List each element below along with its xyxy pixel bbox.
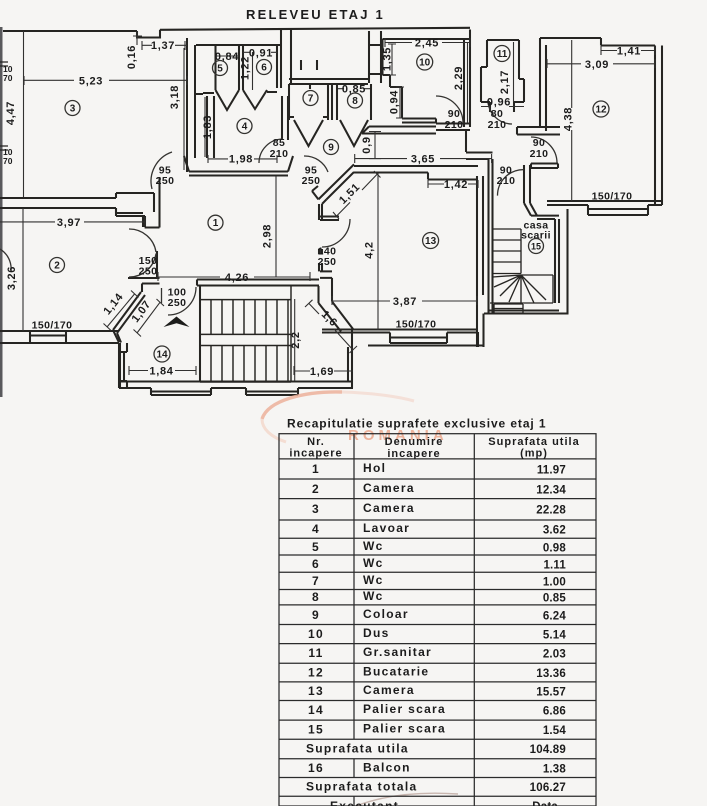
- svg-text:210: 210: [270, 148, 289, 160]
- svg-text:3,26: 3,26: [6, 266, 18, 290]
- svg-text:11: 11: [497, 49, 508, 60]
- svg-text:9: 9: [328, 143, 334, 154]
- svg-text:22.28: 22.28: [536, 505, 566, 517]
- svg-text:3,09: 3,09: [585, 59, 609, 71]
- svg-text:2,17: 2,17: [499, 70, 511, 94]
- svg-text:8: 8: [352, 96, 358, 107]
- svg-text:13.36: 13.36: [536, 668, 566, 680]
- svg-text:12.34: 12.34: [536, 485, 566, 497]
- svg-text:Suprafata utila: Suprafata utila: [488, 436, 579, 448]
- svg-text:1,69: 1,69: [310, 366, 334, 378]
- svg-text:Coloar: Coloar: [363, 607, 409, 621]
- svg-text:4,38: 4,38: [563, 107, 575, 131]
- svg-text:3.62: 3.62: [543, 525, 566, 537]
- svg-text:incapere: incapere: [289, 448, 342, 460]
- svg-text:Lavoar: Lavoar: [363, 521, 410, 535]
- svg-text:104.89: 104.89: [530, 744, 566, 756]
- svg-text:2,2: 2,2: [290, 331, 302, 348]
- svg-text:1,35: 1,35: [382, 47, 394, 71]
- svg-text:9: 9: [312, 608, 320, 622]
- svg-text:Bucatarie: Bucatarie: [363, 665, 429, 679]
- svg-text:5.14: 5.14: [543, 630, 567, 642]
- svg-text:10: 10: [419, 58, 431, 69]
- svg-text:7: 7: [312, 574, 320, 588]
- svg-text:3: 3: [70, 104, 76, 115]
- svg-text:1.54: 1.54: [543, 725, 567, 737]
- svg-text:13: 13: [308, 684, 324, 698]
- svg-text:RELEVEU ETAJ 1: RELEVEU ETAJ 1: [246, 7, 385, 22]
- svg-text:14: 14: [156, 350, 168, 361]
- svg-text:250: 250: [168, 297, 187, 309]
- svg-text:Wc: Wc: [363, 556, 384, 570]
- svg-text:250: 250: [139, 266, 158, 278]
- svg-text:150/170: 150/170: [396, 319, 437, 331]
- svg-text:2,98: 2,98: [262, 224, 274, 248]
- svg-text:150/170: 150/170: [32, 320, 73, 332]
- svg-text:3,87: 3,87: [393, 296, 417, 308]
- svg-text:1,83: 1,83: [202, 115, 214, 139]
- svg-text:0,94: 0,94: [389, 90, 401, 114]
- svg-text:1,37: 1,37: [151, 40, 175, 52]
- svg-text:6: 6: [261, 63, 267, 74]
- svg-text:6: 6: [312, 557, 320, 571]
- svg-text:1: 1: [213, 218, 219, 229]
- svg-text:5: 5: [217, 64, 223, 75]
- svg-text:1.38: 1.38: [543, 764, 567, 776]
- svg-text:0,9: 0,9: [361, 136, 373, 153]
- svg-text:Camera: Camera: [363, 501, 415, 515]
- svg-text:1.11: 1.11: [543, 560, 566, 572]
- svg-text:250: 250: [318, 256, 337, 268]
- svg-text:3,65: 3,65: [411, 154, 435, 166]
- svg-text:6.86: 6.86: [543, 706, 566, 718]
- svg-text:Nr.: Nr.: [307, 436, 325, 448]
- svg-text:15.57: 15.57: [536, 687, 566, 699]
- svg-text:1,42: 1,42: [444, 179, 468, 191]
- svg-text:Wc: Wc: [363, 589, 384, 603]
- svg-text:Camera: Camera: [363, 683, 415, 697]
- svg-text:6.24: 6.24: [543, 611, 567, 623]
- svg-text:Hol: Hol: [363, 461, 386, 475]
- svg-text:16: 16: [308, 761, 324, 775]
- svg-text:3,18: 3,18: [169, 85, 181, 109]
- svg-text:4: 4: [242, 122, 248, 133]
- svg-text:2: 2: [312, 482, 320, 496]
- svg-text:5: 5: [312, 540, 320, 554]
- svg-text:Gr.sanitar: Gr.sanitar: [363, 645, 432, 659]
- svg-text:10: 10: [308, 627, 324, 641]
- svg-text:2,45: 2,45: [415, 38, 439, 50]
- svg-text:1: 1: [312, 462, 320, 476]
- svg-text:210: 210: [488, 119, 507, 131]
- svg-text:12: 12: [308, 666, 324, 680]
- svg-text:Dus: Dus: [363, 626, 390, 640]
- svg-text:Denumire: Denumire: [385, 436, 444, 448]
- svg-text:0,91: 0,91: [249, 48, 273, 60]
- svg-text:210: 210: [445, 119, 464, 131]
- svg-text:Palier scara: Palier scara: [363, 702, 446, 716]
- svg-text:14: 14: [308, 703, 324, 717]
- svg-text:incapere: incapere: [387, 448, 440, 460]
- svg-text:4,26: 4,26: [225, 272, 249, 284]
- svg-text:4,2: 4,2: [364, 241, 376, 258]
- svg-text:2.03: 2.03: [543, 649, 566, 661]
- svg-text:11: 11: [308, 646, 323, 660]
- svg-text:Wc: Wc: [363, 539, 384, 553]
- svg-text:1,98: 1,98: [229, 154, 253, 166]
- svg-text:106.27: 106.27: [530, 782, 566, 794]
- svg-text:2: 2: [54, 261, 60, 272]
- svg-text:Palier scara: Palier scara: [363, 722, 446, 736]
- svg-text:Executant: Executant: [330, 799, 399, 806]
- svg-text:13: 13: [425, 236, 437, 247]
- svg-text:250: 250: [156, 175, 175, 187]
- svg-text:0,96: 0,96: [487, 97, 511, 109]
- svg-text:3,97: 3,97: [57, 217, 81, 229]
- svg-text:12: 12: [595, 105, 607, 116]
- svg-text:1,41: 1,41: [617, 46, 641, 58]
- svg-text:1,84: 1,84: [149, 366, 173, 378]
- svg-text:1,22: 1,22: [240, 56, 252, 80]
- svg-text:4,47: 4,47: [5, 101, 17, 125]
- svg-text:7: 7: [308, 94, 314, 105]
- svg-text:Camera: Camera: [363, 481, 415, 495]
- svg-text:3: 3: [312, 502, 320, 516]
- svg-text:210: 210: [497, 175, 516, 187]
- svg-text:8: 8: [312, 590, 320, 604]
- svg-text:150/170: 150/170: [592, 191, 633, 203]
- svg-text:Data: Data: [532, 801, 558, 806]
- svg-text:(mp): (mp): [520, 448, 548, 460]
- svg-text:0,16: 0,16: [126, 45, 138, 69]
- svg-text:4: 4: [312, 522, 320, 536]
- svg-text:scarii: scarii: [521, 230, 551, 242]
- svg-text:15: 15: [308, 723, 324, 737]
- svg-text:Wc: Wc: [363, 573, 384, 587]
- svg-text:Suprafata totala: Suprafata totala: [306, 780, 418, 794]
- svg-text:70: 70: [3, 73, 13, 83]
- svg-text:Suprafata utila: Suprafata utila: [306, 742, 409, 756]
- svg-text:250: 250: [302, 175, 321, 187]
- svg-text:15: 15: [531, 242, 541, 252]
- svg-text:70: 70: [3, 156, 13, 166]
- svg-text:210: 210: [530, 148, 549, 160]
- svg-text:0.85: 0.85: [543, 593, 567, 605]
- svg-text:1.00: 1.00: [543, 577, 566, 589]
- svg-text:Recapitulatie suprafete exclus: Recapitulatie suprafete exclusive etaj 1: [287, 417, 546, 431]
- svg-text:0.98: 0.98: [543, 543, 567, 555]
- svg-text:Balcon: Balcon: [363, 761, 411, 775]
- svg-text:5,23: 5,23: [79, 76, 103, 88]
- svg-text:11.97: 11.97: [537, 465, 566, 477]
- svg-text:2,29: 2,29: [453, 66, 465, 90]
